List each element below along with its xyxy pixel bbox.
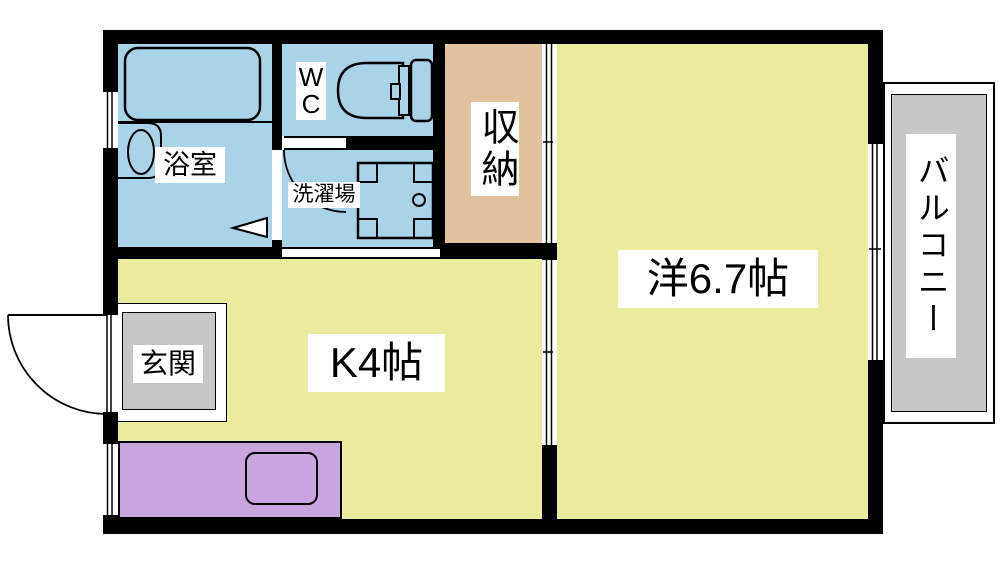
storage-sliding-door <box>542 44 557 243</box>
floorplan: 浴室 W C 洗濯場 収納 洋6.7帖 K4帖 玄関 バルコニー <box>0 0 1000 562</box>
wall-bottom <box>103 519 883 534</box>
label-western-room: 洋6.7帖 <box>618 250 818 308</box>
wall-storage-bottom <box>433 243 557 259</box>
wall-wc-bottom <box>346 136 433 150</box>
label-entrance: 玄関 <box>133 345 203 383</box>
wall-bath-wc-upper <box>272 44 282 150</box>
kitchen-laundry-opening <box>282 247 440 259</box>
label-storage: 収納 <box>471 102 519 196</box>
room-bathroom <box>118 44 272 247</box>
kitchen-sink <box>245 452 318 505</box>
window-bathroom <box>103 90 118 150</box>
entrance-door-swing-arc <box>8 315 107 414</box>
label-laundry: 洗濯場 <box>288 182 360 208</box>
kitchen-room-sliding-door <box>542 260 557 445</box>
label-bathroom: 浴室 <box>155 147 225 183</box>
label-balcony: バルコニー <box>906 134 956 358</box>
label-kitchen: K4帖 <box>308 334 445 392</box>
wall-wc-storage <box>433 30 445 259</box>
label-wc: W C <box>296 62 326 120</box>
wall-top <box>103 30 883 44</box>
window-kitchen <box>103 442 118 517</box>
window-balcony <box>868 142 883 362</box>
wall-bath-bottom <box>103 247 282 259</box>
entrance-door-opening <box>103 313 118 414</box>
bathroom-door-opening <box>272 150 282 240</box>
wc-door-opening <box>284 136 346 150</box>
